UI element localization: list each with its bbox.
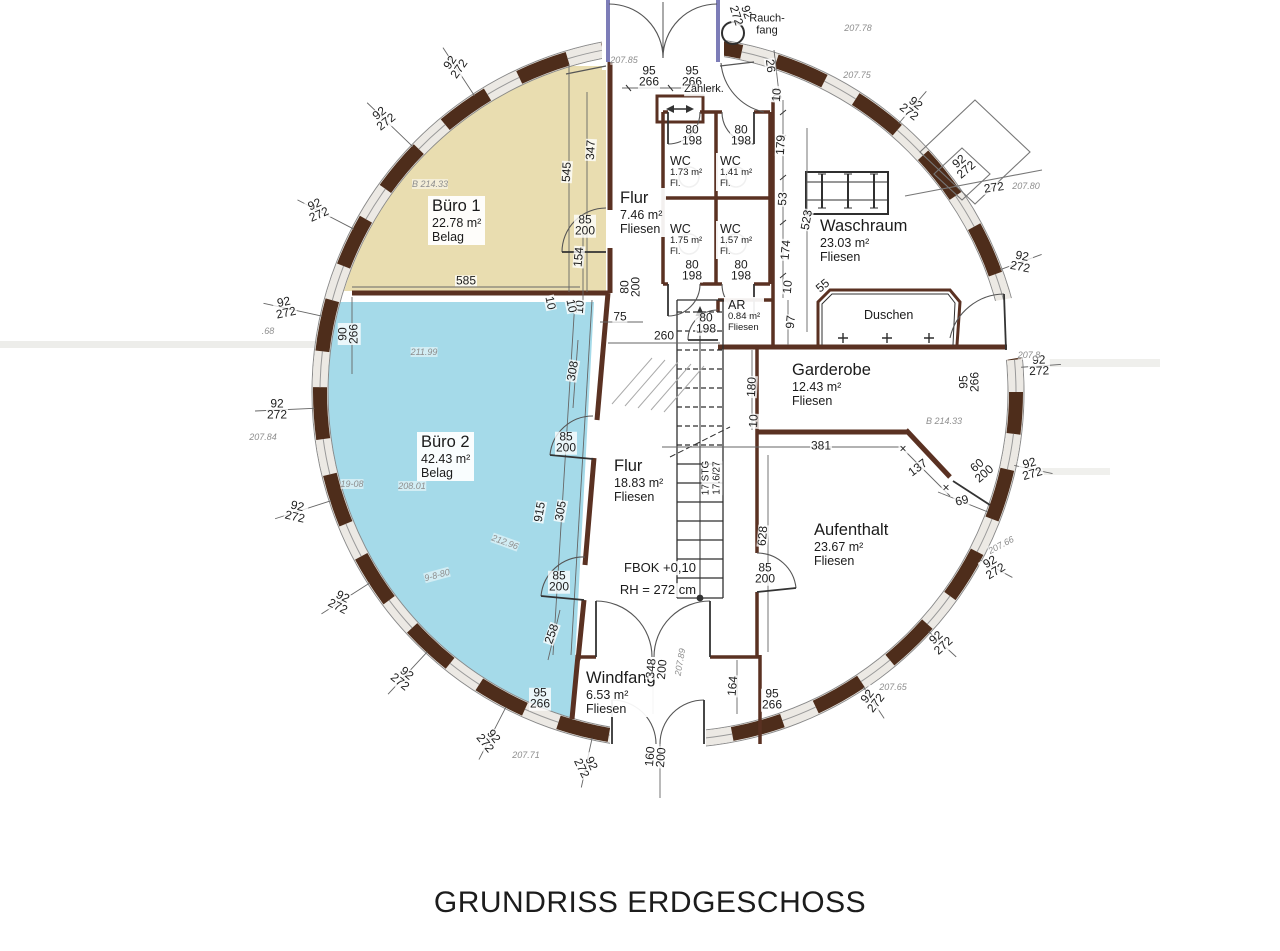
glass-partition-hatch bbox=[612, 358, 704, 412]
toilet-symbols bbox=[679, 167, 746, 254]
drawing-title: GRUNDRISS ERDGESCHOSS bbox=[434, 886, 866, 920]
floor-plan-drawing bbox=[0, 0, 1280, 951]
shower-taps bbox=[838, 333, 934, 343]
ring-openings bbox=[602, 14, 1028, 758]
floor-plan-page: Büro 122.78 m²BelagBüro 242.43 m²BelagFl… bbox=[0, 0, 1280, 951]
fixtures-and-stairs bbox=[612, 22, 1042, 601]
meter-arrow bbox=[666, 105, 694, 113]
chimney-symbol bbox=[722, 22, 744, 44]
washbasin-trough bbox=[806, 172, 888, 214]
room-fills bbox=[327, 66, 606, 719]
shower-enclosure bbox=[818, 290, 960, 345]
